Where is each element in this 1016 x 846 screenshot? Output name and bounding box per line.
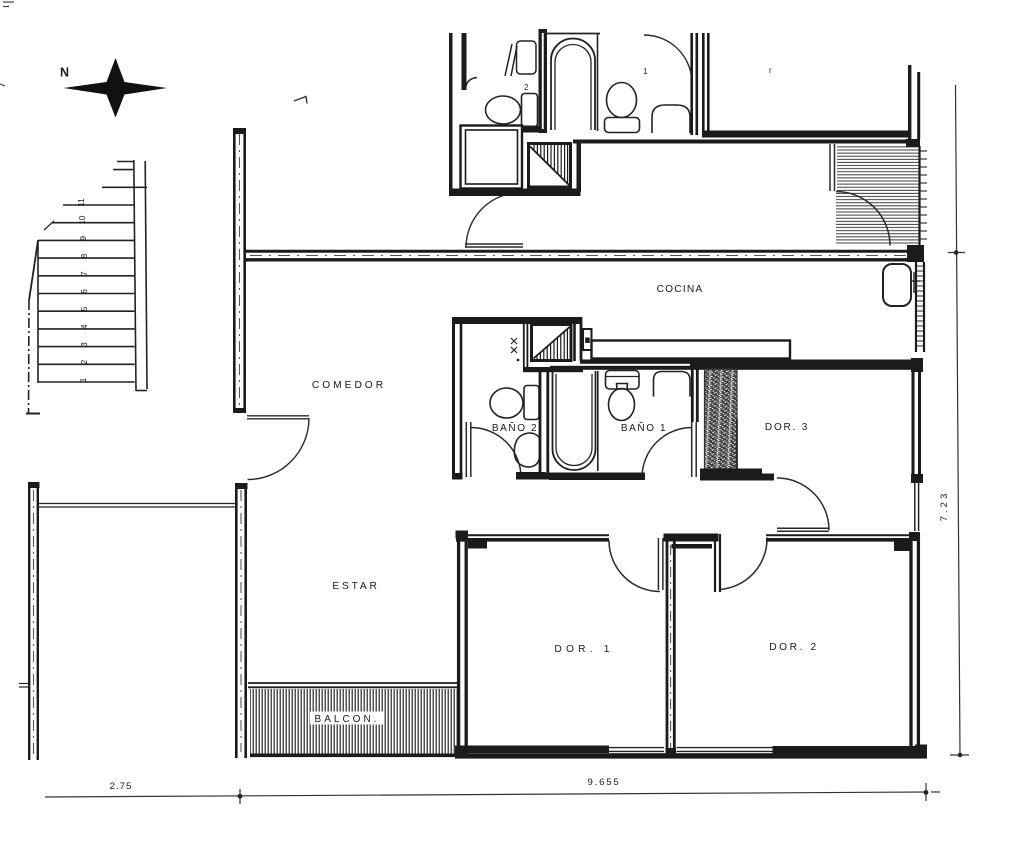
- svg-text:7.23: 7.23: [939, 491, 950, 522]
- svg-text:BALCON.: BALCON.: [315, 714, 380, 725]
- svg-text:5: 5: [80, 306, 89, 311]
- svg-text:6: 6: [80, 289, 89, 294]
- svg-text:9.655: 9.655: [587, 777, 620, 788]
- svg-text:DOR. 3: DOR. 3: [765, 422, 809, 433]
- svg-text:10: 10: [78, 215, 87, 224]
- svg-text:7: 7: [80, 271, 89, 276]
- svg-text:2: 2: [524, 83, 529, 92]
- svg-text:N: N: [60, 66, 69, 80]
- svg-text:8: 8: [80, 253, 89, 258]
- svg-text:COCINA: COCINA: [657, 284, 704, 295]
- svg-text:BAÑO 1: BAÑO 1: [621, 421, 667, 434]
- svg-text:3: 3: [80, 342, 89, 347]
- svg-text:r: r: [769, 66, 772, 75]
- svg-text:4: 4: [80, 324, 89, 329]
- svg-text:11: 11: [77, 198, 86, 207]
- svg-text:DOR. 1: DOR. 1: [554, 644, 613, 655]
- svg-text:2.75: 2.75: [110, 781, 133, 792]
- svg-text:COMEDOR: COMEDOR: [312, 380, 386, 391]
- svg-text:ESTAR: ESTAR: [332, 581, 379, 592]
- svg-text:1: 1: [79, 377, 88, 382]
- svg-text:1: 1: [643, 67, 648, 76]
- svg-text:2: 2: [80, 359, 89, 364]
- svg-text:BAÑO 2: BAÑO 2: [492, 421, 538, 434]
- svg-text:DOR. 2: DOR. 2: [769, 642, 819, 653]
- svg-text:9: 9: [79, 236, 88, 241]
